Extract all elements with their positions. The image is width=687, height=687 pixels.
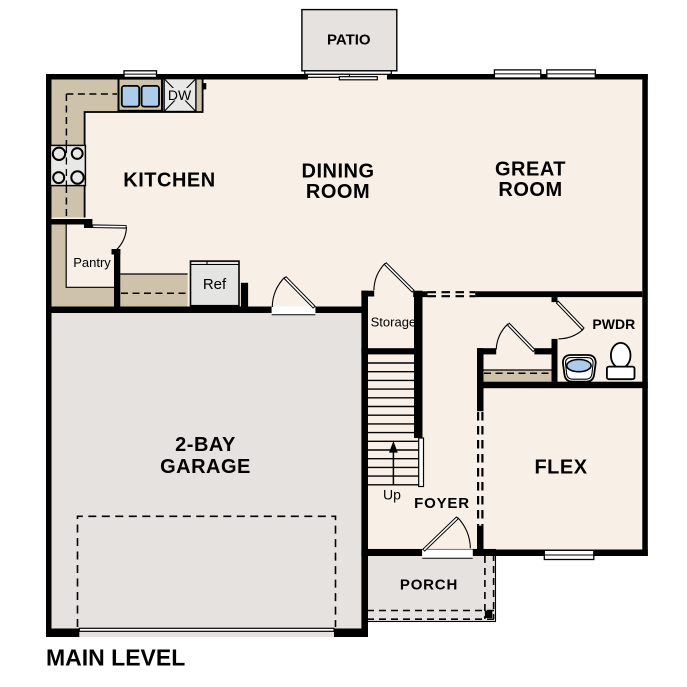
- svg-text:Storage: Storage: [371, 315, 417, 330]
- svg-text:FLEX: FLEX: [534, 457, 587, 479]
- svg-text:DINING: DINING: [302, 161, 375, 183]
- svg-text:PORCH: PORCH: [400, 577, 458, 594]
- svg-text:FOYER: FOYER: [414, 495, 470, 512]
- svg-text:Ref: Ref: [203, 276, 227, 293]
- svg-text:2-BAY: 2-BAY: [175, 434, 236, 456]
- svg-text:KITCHEN: KITCHEN: [123, 170, 215, 192]
- svg-text:Up: Up: [383, 487, 401, 503]
- svg-text:PATIO: PATIO: [327, 32, 371, 49]
- svg-text:MAIN LEVEL: MAIN LEVEL: [46, 645, 185, 671]
- svg-text:PWDR: PWDR: [592, 316, 635, 332]
- svg-text:Pantry: Pantry: [73, 255, 111, 270]
- svg-text:GREAT: GREAT: [495, 159, 566, 181]
- svg-text:GARAGE: GARAGE: [160, 456, 251, 478]
- svg-text:ROOM: ROOM: [498, 179, 562, 201]
- svg-text:ROOM: ROOM: [306, 181, 370, 203]
- svg-text:DW: DW: [168, 87, 192, 103]
